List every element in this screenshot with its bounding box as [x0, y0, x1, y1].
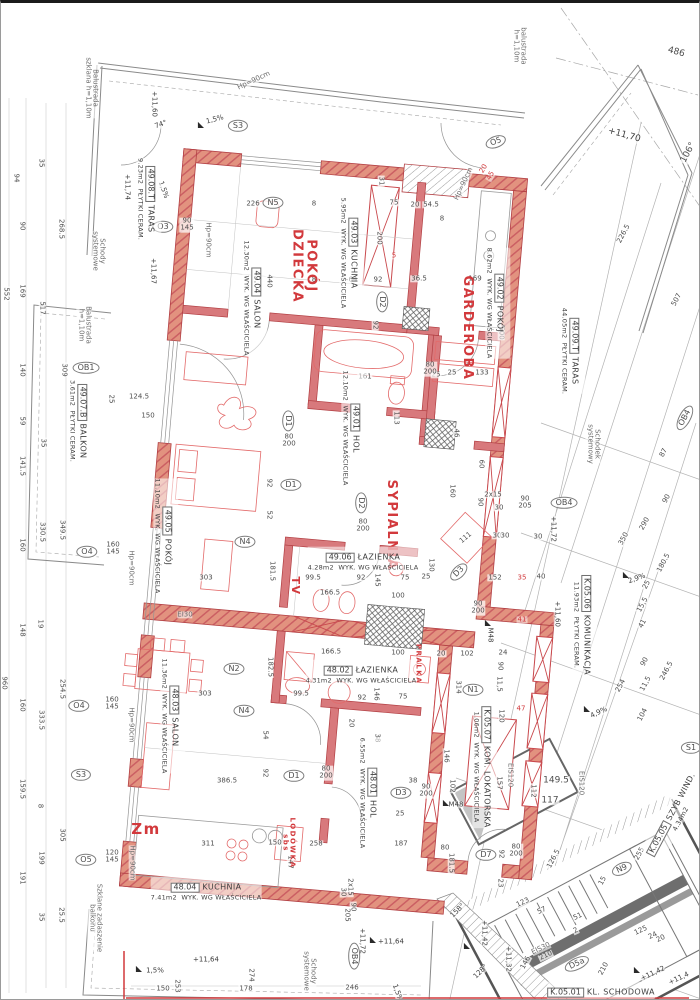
dim-label: 160: [448, 483, 455, 498]
dim-label: 191: [18, 870, 25, 885]
dim-label: 30: [500, 532, 511, 539]
dim-label: 181.5: [268, 560, 275, 582]
annotation-label: balustrada h=1,10m: [512, 27, 527, 64]
dim-label: 40: [536, 573, 547, 580]
room-tag-49.05: 49.05POKÓJ11.10m2 WYK. WG WŁAŚCICIELA: [154, 478, 179, 593]
dim-label: 90: [639, 655, 651, 668]
slope-arrow-icon: ◣: [136, 965, 142, 973]
annotation-label: EI30: [177, 611, 192, 618]
dim-label: 92: [373, 276, 384, 283]
ref-tag-d1: D1: [280, 479, 301, 491]
annotation-label: +11,67: [149, 258, 156, 284]
dim-label: 30: [494, 504, 505, 511]
dim-label: 92: [371, 320, 378, 331]
dim-label: 25: [447, 369, 458, 376]
floorplan-sheet: 5521695171403095935141.5330.5349.5160148…: [0, 0, 700, 1000]
dim-label: 303: [198, 574, 213, 581]
annotation-label: Schody systemowe: [302, 951, 317, 991]
ref-tag-s3: S3: [228, 120, 248, 132]
dim-label: 80 200: [318, 766, 333, 781]
dim-label: 113: [392, 410, 399, 425]
dim-label: 99.5: [304, 574, 322, 581]
dim-label: 100: [390, 592, 405, 599]
dim-label: 92: [265, 478, 272, 489]
room-tag-49.04: 49.04SALON12.30m2 WYK. WG WŁAŚCICIELA: [243, 240, 268, 355]
dim-label: 8: [36, 803, 43, 809]
annotation-label: Hp=90cm: [127, 707, 134, 742]
room-tag-k.05.07: K.05.07KOM. LOKATORSKA1.06m2 WYK. WG WŁA…: [473, 706, 498, 828]
dim-label: 552: [2, 286, 9, 301]
annotation-layer: 5521695171403095935141.5330.5349.5160148…: [1, 3, 700, 1000]
dim-label: 75: [389, 199, 400, 206]
room-name: LODÓWKA sbs: [281, 818, 296, 869]
dim-label: 80 200: [355, 519, 370, 534]
dim-label: 41: [637, 617, 649, 630]
dim-label: 111: [458, 530, 474, 546]
dim-label: 169: [18, 283, 25, 298]
annotation-label: +11,32: [504, 946, 511, 972]
annotation-label: +11,70: [607, 127, 642, 145]
room-name: Zm: [131, 822, 161, 838]
dim-label: 120: [497, 708, 504, 723]
annotation-label: 158°: [449, 902, 466, 919]
dim-label: 23: [496, 878, 503, 889]
dim-label: 80 200: [281, 434, 296, 449]
dim-label: 290: [638, 515, 652, 532]
dim-label: 31: [377, 176, 384, 187]
dim-label: 166.5: [320, 648, 342, 655]
annotation-label: 4,9%: [589, 706, 608, 720]
dim-label: 15,5: [636, 596, 651, 615]
dim-label: 159.5: [18, 778, 25, 800]
annotation-label: Hp=90cm: [453, 167, 475, 202]
dim-label: 92: [356, 574, 367, 581]
dim-label: 303: [197, 690, 212, 697]
dim-label: 150: [155, 985, 170, 992]
dim-label: 90 205: [517, 496, 532, 511]
room-tag-k.05.05: K.05.05SZYB WIND.4.34m2: [641, 769, 700, 862]
dim-label: 5: [391, 252, 397, 259]
dim-label: 2: [572, 926, 581, 935]
ref-tag-d2: D2: [376, 291, 388, 312]
dim-label: 80 200: [508, 844, 523, 859]
dim-label: 178: [238, 985, 253, 992]
dim-label: 90: [18, 221, 25, 232]
dim-label: 146: [442, 748, 449, 763]
dim-label: 20: [436, 650, 447, 657]
dim-label: 960: [0, 675, 7, 690]
annotation-label: 128°: [472, 963, 489, 980]
slope-arrow-icon: ◣: [584, 705, 590, 713]
dim-label: 141.5: [18, 455, 25, 477]
ref-tag-ob4: OB4: [348, 943, 360, 970]
slope-arrow-icon: ◣: [443, 799, 449, 807]
annotation-label: Hp=90cm: [128, 845, 135, 880]
dim-label: 181.5: [447, 852, 454, 874]
ref-tag-d3: D3: [447, 560, 471, 584]
dim-label: 166.5: [319, 589, 341, 596]
annotation-label: M48: [486, 628, 493, 643]
room-tag-49.03: 49.03KUCHNIA5.95m2 WYK. WG WŁAŚCICIELA: [340, 198, 365, 309]
dim-label: 90: [661, 492, 673, 505]
annotation-label: 1,5%: [205, 114, 224, 126]
dim-label: 254.5: [58, 678, 65, 700]
dim-label: 305: [58, 827, 65, 842]
dim-label: 160 145: [105, 542, 120, 557]
dim-label: 123: [514, 896, 531, 909]
dim-label: 210: [597, 960, 611, 977]
ref-tag-n4: N4: [233, 705, 254, 717]
dim-label: 112: [529, 783, 536, 798]
dim-label: 41: [517, 616, 528, 623]
dim-label: 90 200: [418, 784, 433, 799]
dim-label: 19: [36, 619, 43, 630]
dim-label: 15: [597, 874, 609, 887]
ref-tag-o4: O4: [68, 700, 89, 712]
dim-label: 99.5: [292, 690, 310, 697]
dim-label: 8: [311, 200, 317, 207]
annotation-label: +11,60: [553, 601, 560, 627]
ref-tag-d5a: D5a: [563, 953, 592, 975]
room-tag-48.04: 48.04KUCHNIA7.41m2 WYK. WG WŁAŚCICIELA: [151, 877, 262, 902]
dim-label: 54: [261, 730, 268, 741]
dim-label: 517: [38, 300, 45, 315]
dim-label: 30: [533, 533, 544, 540]
dim-label: 152: [487, 574, 502, 581]
annotation-label: +11,42: [480, 920, 487, 946]
dim-label: 205: [343, 907, 350, 922]
ref-tag-n1: N1: [462, 684, 483, 696]
room-tag-48.03: 48.03SALON11.36m2 WYK. WG WŁAŚCICIELA: [161, 658, 186, 773]
room-tag-49.08.t: 49.08.TTARAS9.23m2 PŁYTKI CERAM.: [137, 158, 162, 240]
dim-label: 126.5: [546, 848, 563, 871]
annotation-label: Hp=90cm: [204, 222, 211, 257]
annotation-label: +11,4: [668, 971, 691, 987]
dim-label: 35: [37, 912, 44, 923]
dim-label: 146: [372, 686, 379, 701]
dim-label: 124.5: [128, 393, 150, 400]
ref-tag-d1: D1: [283, 770, 304, 782]
dim-label: 349.5: [58, 519, 65, 541]
dim-label: 160 145: [104, 697, 119, 712]
annotation-label: EIS120: [577, 771, 584, 795]
room-tag-k.05.06: K.05.06KOMUNIKACJA11.93m2 PŁYTKI CERAM.: [573, 575, 598, 675]
annotation-label: +11,42: [640, 965, 667, 983]
ref-tag-n4: N4: [234, 536, 255, 548]
dim-label: 80 200: [422, 362, 437, 377]
dim-label: 330.5: [38, 521, 45, 543]
dim-label: 150: [140, 412, 155, 419]
room-tag-k.05.01: K.05.01KL. SCHODOWA: [547, 982, 655, 999]
slope-arrow-icon: ◣: [370, 936, 376, 944]
dim-label: 311: [200, 840, 215, 847]
dim-label: 90 145: [179, 218, 194, 233]
ref-tag-s1: S1: [681, 742, 700, 754]
dim-label: 90: [496, 661, 503, 672]
ref-tag-d3: D3: [390, 787, 411, 799]
dim-label: 36.5: [410, 275, 428, 282]
dim-label: 75: [398, 693, 409, 700]
dim-label: 182.5: [266, 656, 273, 678]
slope-arrow-icon: ◣: [464, 942, 470, 950]
ref-tag-d7: D7: [475, 849, 496, 861]
dim-label: 199: [37, 850, 44, 865]
dim-label: 160: [18, 697, 25, 712]
dim-label: 24: [498, 649, 509, 656]
room-tag-49.01: 49.01HOL12.10m2 WYK. WG WŁAŚCICIELA: [342, 370, 367, 485]
dim-label: 92: [261, 768, 268, 779]
dim-label: 57: [535, 905, 548, 916]
dim-label: 333.5: [37, 709, 44, 731]
ref-tag-o5: O5: [484, 133, 508, 152]
annotation-label: Hp=90cm: [127, 550, 134, 585]
ref-tag-o5: O5: [75, 854, 96, 866]
dim-label: 258: [308, 840, 323, 847]
ref-tag-d1: D1: [282, 410, 294, 431]
dim-label: 25: [421, 573, 432, 580]
dim-label: 60: [477, 459, 484, 470]
annotation-label: 1,5%: [391, 983, 404, 1000]
dim-label: 350: [617, 530, 631, 547]
dim-label: 52: [265, 510, 272, 521]
dim-label: 90 200: [470, 601, 485, 616]
dim-label: 226.5: [616, 223, 633, 246]
dim-label: 59: [18, 416, 25, 427]
dim-label: 2x15: [483, 491, 503, 498]
annotation-label: 74°: [154, 119, 168, 130]
room-tag-48.01: 48.01HOL6.55m2 WYK. WG WŁAŚCICIELA: [359, 738, 384, 849]
dim-label: 45: [485, 169, 497, 182]
dim-label: 226: [245, 200, 260, 207]
annotation-label: 1,5%: [146, 967, 164, 974]
dim-label: 100: [390, 649, 405, 656]
annotation-label: EIS120: [506, 763, 513, 787]
annotation-label: Schodek systemowy: [586, 424, 601, 463]
dim-label: 145: [373, 572, 380, 587]
ref-tag-n5: N5: [262, 197, 283, 209]
room-tag-49.07.b: 49.07.BBALKON3.61m2 PŁYTKI CERAM.: [69, 380, 94, 462]
dim-label: 507: [670, 291, 684, 308]
dim-label: 254: [614, 677, 628, 694]
dim-label: 46: [452, 428, 459, 439]
dim-label: 200: [375, 230, 382, 245]
dim-label: 268.5: [57, 218, 64, 240]
dim-label: 30: [339, 887, 346, 898]
annotation-label: +11,64: [378, 938, 404, 945]
dim-label: 140: [18, 362, 25, 377]
slope-arrow-icon: ◣: [485, 619, 491, 627]
annotation-label: +11,64: [193, 956, 219, 963]
slope-arrow-icon: ◣: [634, 966, 640, 974]
dim-label: 20: [410, 201, 421, 208]
dim-label: 130: [427, 557, 434, 572]
dim-label: 149.5: [542, 776, 570, 785]
room-name: TV: [289, 576, 301, 595]
dim-label: 246: [344, 984, 359, 991]
dim-label: 20: [654, 933, 667, 944]
dim-label: 309: [60, 362, 67, 377]
ref-tag-s3: S3: [71, 769, 91, 781]
ref-tag-ob4: OB4: [673, 403, 697, 433]
dim-label: 35: [517, 574, 528, 581]
room-tag-49.09.t: 49.09.TTARAS44.05m2 PŁYTKI CERAM.: [561, 308, 586, 394]
dim-label: 75: [400, 574, 411, 581]
dim-label: 187: [393, 840, 408, 847]
dim-label: 146: [519, 954, 533, 971]
dim-label: 25.5: [57, 906, 64, 924]
annotation-label: +11,60: [150, 91, 157, 117]
annotation-label: +11,74: [123, 174, 130, 200]
room-tag-49.06: 49.06ŁAZIENKA4.28m2 WYK. WG WŁAŚCICIELA: [308, 547, 419, 572]
ref-tag-o4: O4: [76, 546, 97, 558]
dim-label: 80: [440, 844, 451, 851]
annotation-label: M48: [449, 801, 464, 808]
room-tag-48.02: 48.02ŁAZIENKA4.31m2 WYK. WG WŁAŚCICIELA: [306, 660, 417, 685]
dim-label: 38: [408, 777, 419, 784]
dim-label: 106°: [679, 140, 698, 165]
dim-label: 54.5: [422, 201, 440, 208]
dim-label: 11,5: [639, 675, 654, 694]
dim-label: 148: [18, 622, 25, 637]
dim-label: 25: [107, 394, 114, 405]
dim-label: 274: [247, 967, 254, 982]
annotation-label: Schody systemowe: [91, 231, 106, 271]
room-tag-49.02: 49.02POKÓJ8.62m2 WYK. WG WŁAŚCICIELA: [486, 248, 511, 359]
dim-label: 11,5: [495, 675, 502, 693]
dim-label: 133: [474, 369, 489, 376]
dim-label: 102: [448, 778, 455, 793]
ref-tag-n9: N9: [610, 859, 634, 879]
dim-label: 35: [37, 158, 44, 169]
slope-arrow-icon: ◣: [198, 121, 204, 129]
dim-label: 253: [173, 978, 180, 993]
annotation-label: Szklane zadaszenie balkonu: [88, 884, 103, 952]
dim-label: 386.5: [216, 777, 238, 784]
annotation-label: Balustrada h=1,10m: [77, 306, 92, 344]
dim-label: 35: [39, 438, 46, 449]
annotation-label: +11,72: [549, 516, 556, 542]
dim-label: 102: [459, 650, 474, 657]
dim-label: 92: [357, 694, 368, 701]
dim-label: 47: [516, 705, 527, 712]
dim-label: 94: [12, 173, 19, 184]
dim-label: 92: [497, 849, 504, 860]
dim-label: 314: [454, 679, 461, 694]
ref-tag-d2: D2: [355, 492, 367, 513]
ref-tag-ob4: OB4: [551, 497, 578, 509]
dim-label: 8: [439, 215, 445, 222]
dim-label: 117: [540, 796, 559, 805]
dim-label: 87: [658, 446, 670, 459]
slope-arrow-icon: ◣: [623, 571, 629, 579]
room-name: POKÓJ DZIECKA: [290, 229, 317, 303]
dim-label: 246.5: [659, 660, 676, 683]
dim-label: 180.5: [656, 552, 673, 575]
ref-tag-n2: N2: [223, 663, 244, 675]
dim-label: 160: [18, 537, 25, 552]
dim-label: 120 145: [104, 850, 119, 865]
room-name: GARDEROBA: [460, 276, 474, 381]
annotation-label: Hp=90cm: [237, 70, 272, 92]
dim-label: 486: [666, 46, 687, 60]
dim-label: 20: [347, 718, 354, 729]
ref-tag-ob1: OB1: [73, 362, 100, 374]
dim-label: 104: [636, 706, 650, 723]
dim-label: 25: [395, 810, 406, 817]
dim-label: 51: [571, 911, 584, 922]
annotation-label: Balustrada szklana h=1,10m: [84, 57, 99, 118]
